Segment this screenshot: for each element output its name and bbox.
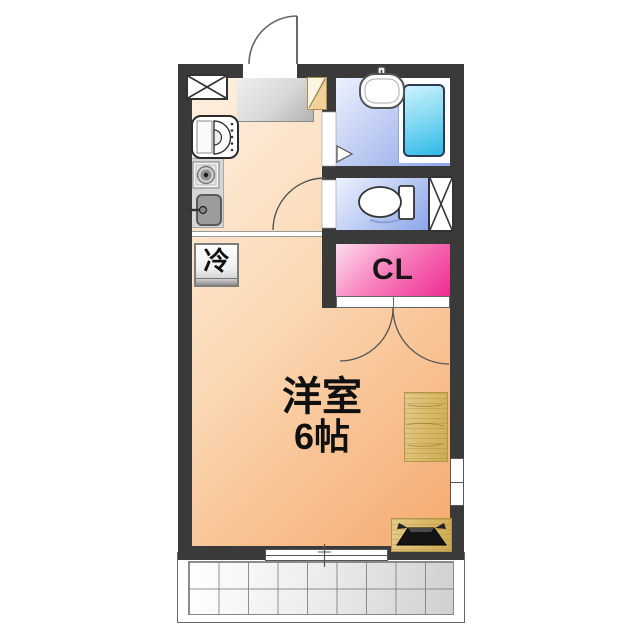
toilet-floor — [336, 178, 428, 230]
refrigerator-label: 冷 — [203, 245, 229, 277]
entrance-step — [237, 78, 314, 122]
wall-toilet-closet — [322, 230, 450, 244]
shoe-cabinet — [307, 77, 327, 110]
refrigerator-base — [196, 278, 237, 285]
kitchen-sink — [196, 194, 222, 226]
wall-left — [178, 64, 192, 560]
entry-door-opening — [243, 64, 297, 78]
bathtub — [403, 84, 445, 157]
floor-plan: CL 冷 洋室 6帖 — [0, 0, 640, 640]
balcony-tiles — [188, 561, 454, 615]
small-window — [450, 458, 464, 506]
refrigerator: 冷 — [194, 243, 239, 287]
main-room-size: 6帖 — [222, 418, 422, 456]
closet-double-doors — [336, 296, 450, 308]
pipe-space-box — [428, 176, 454, 232]
tv-board — [391, 518, 452, 552]
wall-kitchen-divider — [322, 78, 336, 308]
sliding-window — [265, 549, 388, 561]
main-room-name: 洋室 — [222, 376, 422, 418]
small-window-divider — [451, 482, 463, 483]
entry-door-icon — [249, 16, 297, 64]
sliding-window-divider — [266, 555, 387, 556]
kitchen-boundary-line — [192, 231, 322, 237]
closet-door-divider — [393, 297, 394, 307]
main-room-label: 洋室 6帖 — [222, 376, 422, 456]
closet: CL — [336, 244, 450, 296]
closet-label: CL — [372, 253, 414, 287]
meter-box — [186, 74, 228, 100]
